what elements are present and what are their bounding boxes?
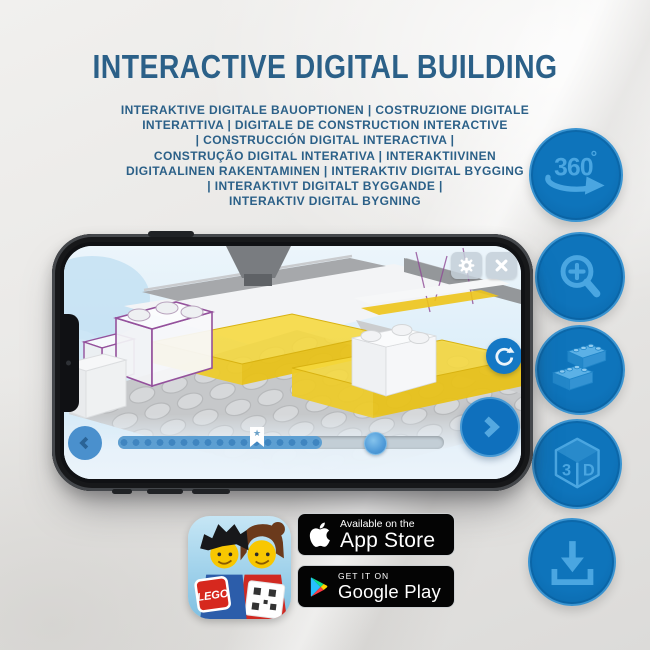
badge-store-name: Google Play xyxy=(338,581,441,602)
app-screen: ★ xyxy=(64,246,521,479)
gear-icon xyxy=(456,255,477,276)
app-store-badge-text: Available on the App Store xyxy=(340,518,435,552)
google-play-badge[interactable]: GET IT ON Google Play xyxy=(297,565,455,608)
rotate-view-button[interactable] xyxy=(486,338,521,374)
phone-side-button xyxy=(192,489,230,494)
download-icon xyxy=(528,518,616,606)
slider-fill xyxy=(118,436,322,449)
rotate-icon xyxy=(492,344,516,368)
phone-mockup: ★ xyxy=(52,234,533,491)
settings-button[interactable] xyxy=(451,252,482,279)
svg-text:D: D xyxy=(583,461,595,479)
badge-store-name: App Store xyxy=(340,530,435,552)
build-progress-slider[interactable]: ★ xyxy=(118,436,444,449)
page-title: INTERACTIVE DIGITAL BUILDING xyxy=(46,48,605,86)
svg-text:°: ° xyxy=(591,149,598,167)
front-camera-icon xyxy=(66,360,71,365)
phone-side-button xyxy=(148,231,194,237)
previous-step-button[interactable] xyxy=(68,426,102,460)
chevron-right-icon xyxy=(476,413,504,441)
app-store-badge[interactable]: Available on the App Store xyxy=(297,513,455,556)
brick-options-icon xyxy=(535,325,625,415)
store-badges: Available on the App Store GET IT ON Goo… xyxy=(297,513,447,608)
svg-text:3: 3 xyxy=(562,461,571,479)
badge-tagline: Available on the xyxy=(340,518,435,530)
promo-page: INTERACTIVE DIGITAL BUILDING INTERAKTIVE… xyxy=(0,0,650,650)
next-step-button[interactable] xyxy=(460,397,520,457)
phone-side-button xyxy=(112,489,132,494)
subtitle-line: INTERAKTIVE DIGITALE BAUOPTIONEN | COSTR… xyxy=(0,103,650,118)
google-play-logo-icon xyxy=(309,576,329,598)
360-rotation-icon: 360 ° xyxy=(529,128,623,222)
chevron-left-icon xyxy=(76,434,94,452)
close-button[interactable] xyxy=(486,252,517,279)
phone-notch xyxy=(64,314,79,412)
apple-logo-icon xyxy=(309,521,331,548)
phone-side-button xyxy=(147,489,183,494)
slider-thumb[interactable] xyxy=(364,432,387,455)
close-icon xyxy=(491,255,512,276)
subtitle-line: INTERATTIVA | DIGITALE DE CONSTRUCTION I… xyxy=(0,118,650,133)
3d-view-icon: 3 D xyxy=(532,419,622,509)
lego-app-icon[interactable]: LEGO xyxy=(188,516,291,619)
badge-tagline: GET IT ON xyxy=(338,571,441,581)
google-play-badge-text: GET IT ON Google Play xyxy=(338,571,441,602)
zoom-in-icon xyxy=(535,232,625,322)
